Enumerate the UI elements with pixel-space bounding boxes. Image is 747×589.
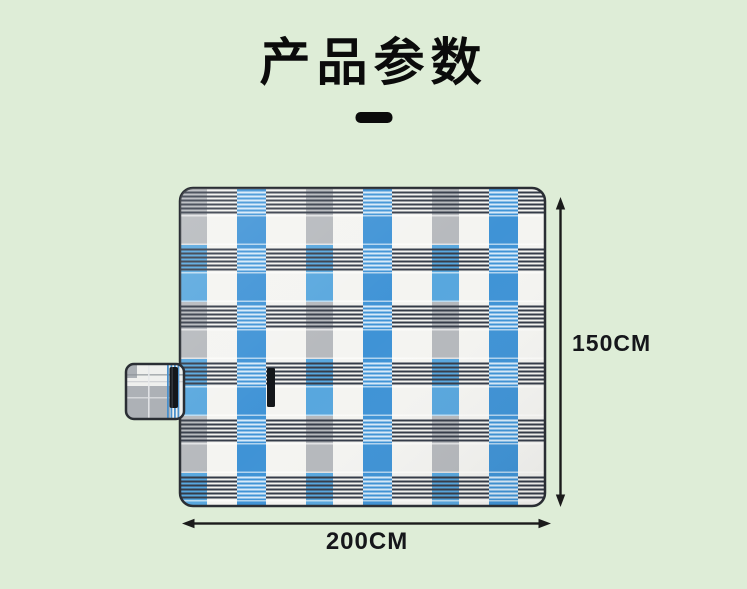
handle-strap [170,367,179,408]
product-photo [0,0,747,589]
blanket-sheen-overlay [180,188,545,506]
width-dimension-arrow [182,519,551,528]
blanket-handle-flap [126,364,184,419]
width-dimension-label: 200CM [183,528,551,556]
picnic-blanket-image [180,188,545,506]
height-dimension-label: 150CM [572,330,651,357]
blanket-strap [267,368,275,407]
height-dimension-arrow [556,197,565,507]
product-parameter-page: { "page": { "background_color": "#deedd7… [0,0,747,589]
